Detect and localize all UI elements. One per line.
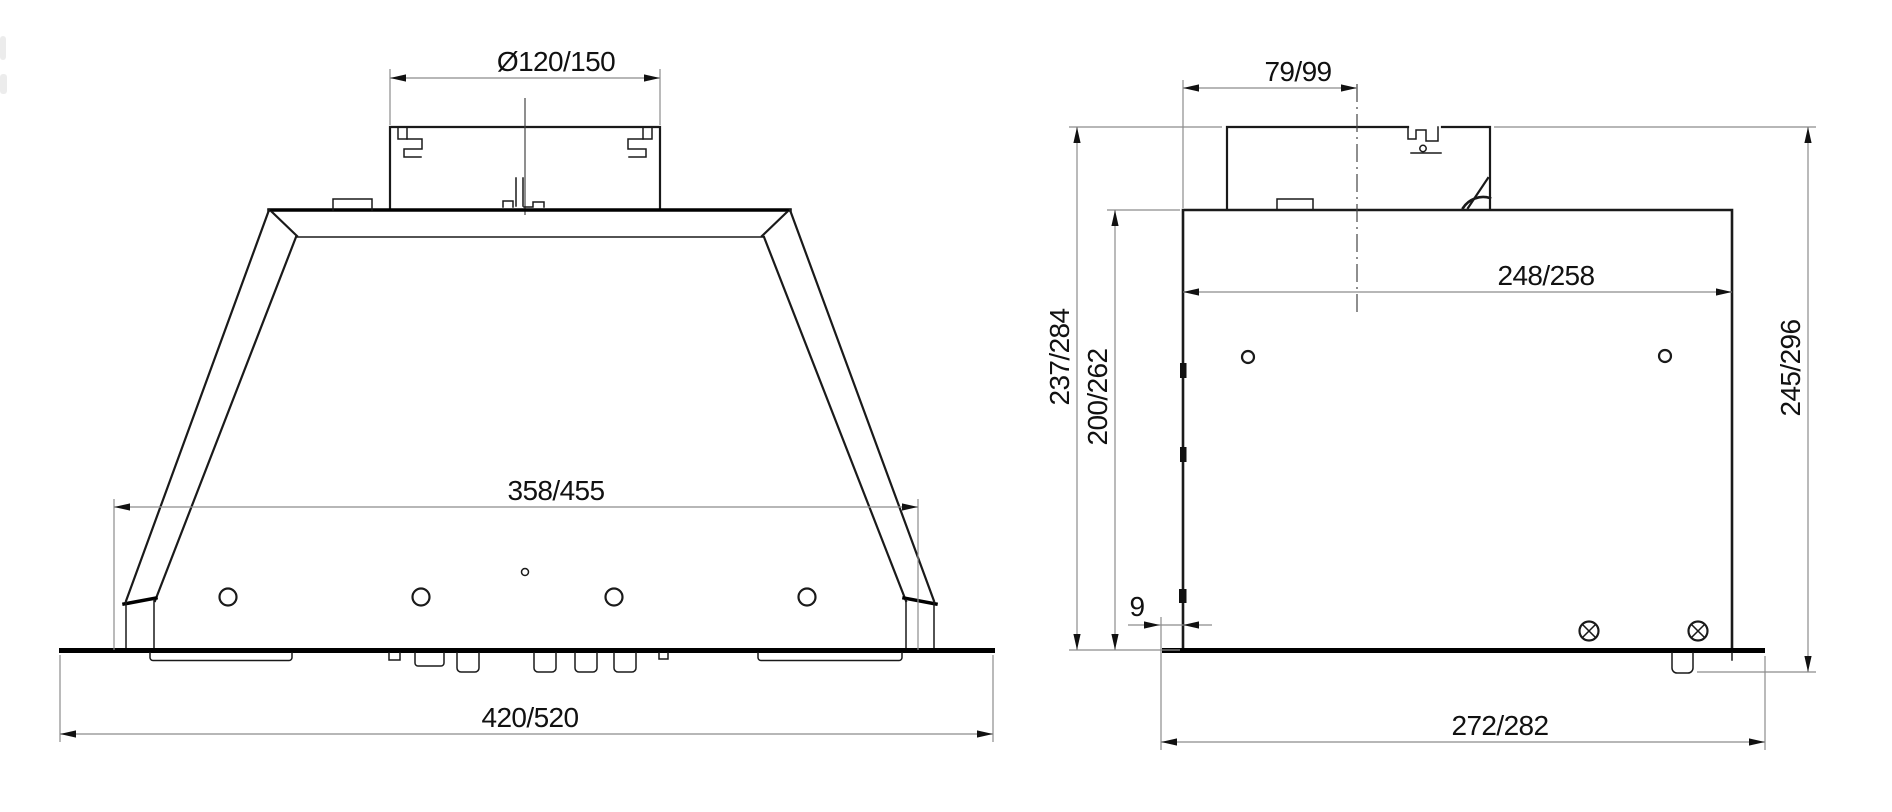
slant-left-inner [155, 237, 296, 601]
foot-cut-left [124, 598, 156, 604]
dim-label-plate-width: 272/282 [1451, 710, 1548, 741]
arrow-right-icon [977, 730, 993, 737]
connector-pin-4 [614, 653, 636, 672]
technical-drawing-page: Ø120/150 358/455 420/520 [0, 0, 1892, 812]
slant-left-outer [126, 210, 269, 601]
side-bottom-plate [1162, 651, 1765, 674]
front-bottom-plate [59, 651, 995, 661]
dim-box-width: 248/258 [1183, 260, 1732, 296]
edge-slot-3 [1179, 589, 1187, 603]
gusset-arc [1463, 197, 1490, 208]
duct-latch-left-detail [404, 139, 422, 157]
duct-notch [1408, 127, 1438, 141]
dim-lines [1183, 80, 1357, 208]
arrow-down-icon [1111, 634, 1118, 650]
duct-bracket-foot-left [503, 201, 513, 207]
dim-label-overall-width: 420/520 [481, 702, 578, 733]
edge-slot-2 [1180, 447, 1187, 462]
side-screws [1580, 622, 1708, 641]
arrow-left-icon [1183, 621, 1199, 628]
arrow-left-icon [390, 74, 406, 81]
gusset-diagonal [1468, 178, 1488, 208]
hood-dimension-drawing: Ø120/150 358/455 420/520 [0, 0, 1892, 812]
mounting-hole-3 [606, 589, 623, 606]
mounting-hole-1 [220, 589, 237, 606]
corner-chamfer-left [272, 212, 297, 236]
arrow-right-icon [644, 74, 660, 81]
dim-plate-inset: 9 [1128, 591, 1212, 750]
connector-block-small-left [389, 653, 400, 660]
connector-pin-1 [457, 653, 479, 672]
dim-label-box-width: 248/258 [1497, 260, 1594, 291]
dim-height-with-duct: 237/284 [1044, 127, 1222, 650]
dim-label-body-height: 200/262 [1082, 348, 1113, 445]
duct-notch-pin [1420, 145, 1426, 151]
foot-cut-right [904, 598, 936, 604]
slant-right-inner [764, 237, 906, 601]
screw-cross-icon [1692, 625, 1704, 637]
arrow-left-icon [1183, 84, 1199, 91]
corner-chamfer-right [762, 212, 787, 236]
scan-artifact [0, 36, 6, 60]
dim-opening-width: 358/455 [114, 475, 918, 650]
dim-label-opening-width: 358/455 [507, 475, 604, 506]
arrow-up-icon [1073, 127, 1080, 143]
dim-lines [1128, 617, 1212, 750]
dim-lines [1107, 210, 1180, 650]
duct-latch-right [643, 127, 652, 139]
foot-right [906, 600, 934, 649]
duct-bracket-foot-right [524, 202, 544, 207]
plate-bump [1672, 653, 1693, 673]
side-duct [1227, 84, 1490, 312]
mounting-hole-4 [799, 589, 816, 606]
dim-label-plate-inset: 9 [1130, 591, 1145, 622]
arrow-up-icon [1111, 210, 1118, 226]
dim-label-duct-offset: 79/99 [1264, 56, 1331, 87]
side-hole-left [1242, 351, 1254, 363]
side-view: 79/99 248/258 237/284 200/262 [1044, 56, 1816, 750]
slant-right-outer [790, 210, 934, 601]
scan-artifact [0, 74, 7, 94]
duct-center-bracket [516, 178, 523, 206]
arrow-right-icon [1749, 738, 1765, 745]
front-connectors [389, 653, 668, 672]
duct-latch-right-detail [628, 139, 646, 157]
dim-lines [114, 499, 918, 650]
front-view: Ø120/150 358/455 420/520 [59, 46, 995, 742]
arrow-left-icon [1183, 288, 1199, 295]
dim-overall-width: 420/520 [60, 655, 993, 742]
box-outline [1183, 210, 1732, 650]
dim-body-height: 200/262 [1082, 210, 1180, 650]
arrow-up-icon [1804, 127, 1811, 143]
duct-latch-left [398, 127, 407, 139]
dim-label-height-with-duct: 237/284 [1044, 308, 1075, 405]
arrow-down-icon [1804, 656, 1811, 672]
side-hole-right [1659, 350, 1671, 362]
screw-cross-icon [1583, 625, 1595, 637]
front-body [124, 199, 936, 649]
mounting-hole-2 [413, 589, 430, 606]
dim-plate-width: 272/282 [1161, 656, 1765, 750]
arrow-right-icon [1341, 84, 1357, 91]
pilot-hole [522, 569, 529, 576]
connector-pin-3 [575, 653, 597, 672]
front-holes [220, 569, 816, 606]
duct-left-top [1227, 127, 1408, 208]
arrow-right-icon [902, 503, 918, 510]
connector-block-small-right [659, 653, 668, 659]
edge-slot-1 [1180, 363, 1187, 378]
arrow-left-icon [60, 730, 76, 737]
side-top-tab [1277, 199, 1313, 209]
arrow-right-icon [1716, 288, 1732, 295]
front-duct [390, 98, 660, 215]
connector-tray [415, 653, 444, 666]
dim-duct-offset: 79/99 [1183, 56, 1357, 208]
under-strip-left [150, 653, 292, 661]
connector-pin-2 [534, 653, 556, 672]
arrow-left-icon [114, 503, 130, 510]
arrow-down-icon [1073, 634, 1080, 650]
side-box [1179, 210, 1732, 650]
dim-label-overall-height: 245/296 [1775, 319, 1806, 416]
under-strip-right [758, 653, 902, 661]
arrow-left-icon [1161, 738, 1177, 745]
dim-label-duct-diameter: Ø120/150 [497, 46, 615, 77]
arrow-right-icon [1144, 621, 1160, 628]
foot-left [126, 600, 154, 649]
